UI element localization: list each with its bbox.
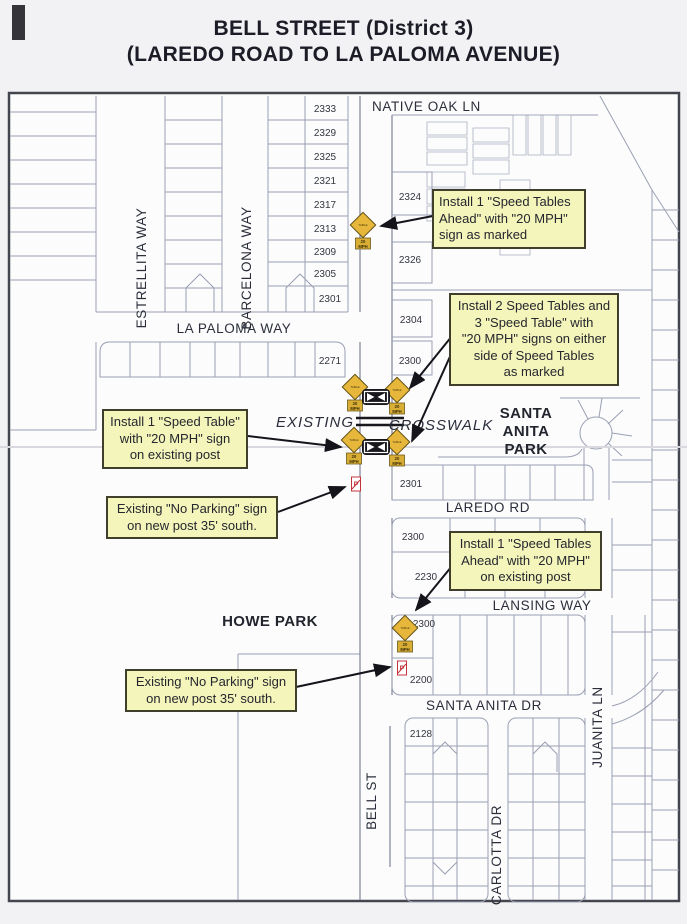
street-label-laredo-rd: LAREDO RD (446, 500, 530, 515)
lot-number: 2230 (415, 572, 438, 583)
area-label-santa-anita-park: SANTA (500, 405, 553, 422)
lot-number: 2300 (399, 356, 422, 367)
lot-number: 2325 (314, 152, 337, 163)
scan-artifact (12, 5, 25, 40)
lot-number: 2300 (402, 532, 425, 543)
lot-number: 2309 (314, 247, 337, 258)
callout-no-parking-north: Existing "No Parking" sign on new post 3… (106, 496, 278, 539)
callout-speed-tables-ahead-south: Install 1 "Speed Tables Ahead" with "20 … (449, 531, 602, 591)
lot-number: 2326 (399, 255, 422, 266)
lot-number: 2128 (410, 729, 433, 740)
speed-table-marking-icon (362, 389, 390, 405)
street-label-carlotta-dr: CARLOTTA DR (489, 805, 504, 905)
no-parking-sign-icon: P (352, 477, 361, 491)
no-parking-sign-icon: P (398, 661, 407, 675)
lot-number: 2317 (314, 200, 337, 211)
sign-legend: TABLE (349, 438, 358, 442)
label-crosswalk: CROSSWALK (389, 417, 494, 434)
lot-number: 2304 (400, 315, 423, 326)
callout-speed-tables-crosswalk: Install 2 Speed Tables and 3 "Speed Tabl… (449, 293, 619, 386)
street-label-lansing-way: LANSING WAY (493, 598, 592, 613)
sign-legend: TABLE (358, 223, 367, 227)
street-label-estrellita-way: ESTRELLITA WAY (134, 208, 149, 329)
street-label-bell-st: BELL ST (364, 772, 379, 830)
sign-legend: TABLE (392, 440, 401, 444)
lot-number: 2329 (314, 128, 337, 139)
lot-number: 2333 (314, 104, 337, 115)
mph-plaque: MPH (400, 647, 409, 652)
mph-plaque: MPH (358, 244, 367, 249)
lot-number: 2301 (319, 294, 342, 305)
lot-number: 2200 (410, 675, 433, 686)
street-label-juanita-ln: JUANITA LN (590, 686, 605, 768)
sign-legend: TABLE (392, 388, 401, 392)
lot-number: 2313 (314, 224, 337, 235)
lot-number: 2301 (400, 479, 423, 490)
mph-plaque: MPH (392, 409, 401, 414)
lot-number: 2324 (399, 192, 422, 203)
street-label-barcelona-way: BARCELONA WAY (239, 206, 254, 329)
street-label-santa-anita-dr: SANTA ANITA DR (426, 698, 542, 713)
mph-plaque: MPH (392, 461, 401, 466)
mph-plaque: MPH (349, 459, 358, 464)
sign-legend: TABLE (400, 626, 409, 630)
mph-plaque: MPH (350, 406, 359, 411)
callout-speed-table-existing-post: Install 1 "Speed Table" with "20 MPH" si… (102, 409, 248, 469)
street-label-la-paloma-way: LA PALOMA WAY (177, 321, 292, 336)
callout-no-parking-south: Existing "No Parking" sign on new post 3… (125, 669, 297, 712)
area-label-howe-park: HOWE PARK (222, 613, 318, 630)
label-existing: EXISTING (276, 414, 354, 431)
lot-number: 2321 (314, 176, 337, 187)
callout-speed-tables-ahead-north: Install 1 "Speed Tables Ahead" with "20 … (432, 189, 586, 249)
area-label-santa-anita-park: ANITA (503, 423, 550, 440)
speed-table-marking-icon (362, 439, 390, 455)
scanned-traffic-plan-page: BELL STREET (District 3) (LAREDO ROAD TO… (0, 0, 687, 924)
street-label-native-oak-ln: NATIVE OAK LN (372, 99, 481, 114)
sign-legend: TABLE (350, 385, 359, 389)
lot-number: 2305 (314, 269, 337, 280)
lot-number: 2271 (319, 356, 342, 367)
area-label-santa-anita-park: PARK (505, 441, 548, 458)
